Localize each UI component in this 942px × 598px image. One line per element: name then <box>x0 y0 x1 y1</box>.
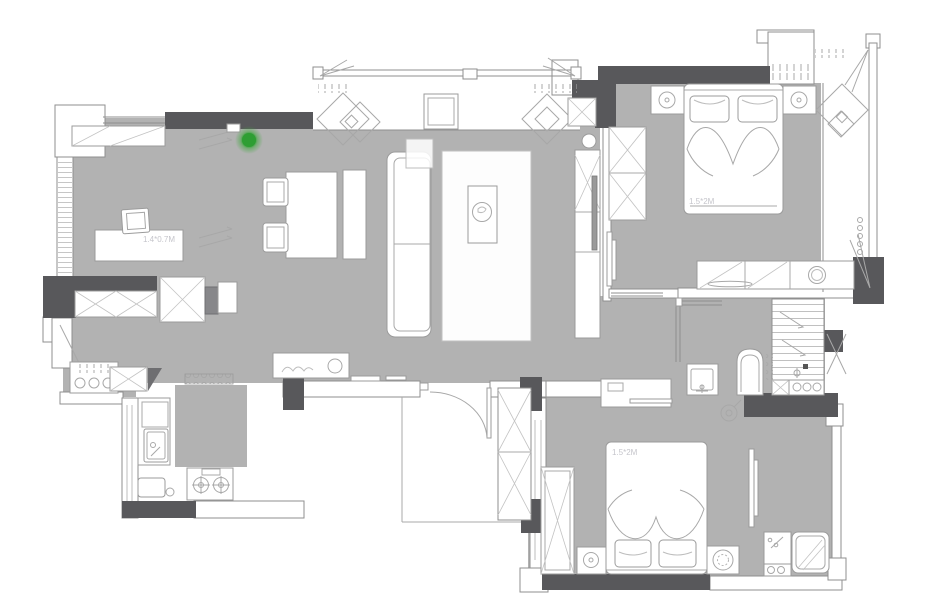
coffee-table <box>468 186 497 243</box>
laundry-bathroom <box>764 532 829 576</box>
desk-size-label: 1.4*0.7M <box>143 235 175 244</box>
tv-screen <box>592 176 597 250</box>
master-wardrobe <box>609 127 646 220</box>
nightstand-left <box>651 86 684 114</box>
entry-hall-floor <box>400 383 500 524</box>
floor-lamp <box>582 134 596 148</box>
cabinet-dark-box <box>205 287 218 314</box>
second-bed: 1.5*2M <box>606 442 707 574</box>
sill-hatch <box>815 49 848 58</box>
pillow <box>615 540 651 567</box>
entry-door-leaf[interactable] <box>487 388 491 438</box>
entry-closet <box>498 388 531 520</box>
window-hatch <box>770 62 812 80</box>
shelf-item <box>351 376 380 381</box>
sofa <box>387 152 431 337</box>
nightstand-right <box>783 86 816 114</box>
sliding-door-master[interactable] <box>607 232 612 286</box>
tv-cabinet <box>575 150 600 338</box>
dining-table <box>286 172 337 258</box>
laundry-east-wall <box>832 418 841 564</box>
laundry-sink <box>764 532 791 564</box>
living-rug <box>442 151 531 341</box>
shelf-item-2 <box>386 376 406 380</box>
kitchen-sink <box>144 429 168 462</box>
master-bed-size-label: 1.5*2M <box>689 197 715 206</box>
second-bed-size-label: 1.5*2M <box>612 448 638 457</box>
kitchen-south-wall <box>194 501 304 518</box>
door-hinge <box>676 298 682 306</box>
toilet <box>737 349 763 395</box>
shower <box>772 299 824 380</box>
kitchen-low-cabinet <box>138 478 165 497</box>
sill-hatch-right <box>533 84 577 93</box>
dresser <box>697 261 854 289</box>
east-balcony-frame <box>869 43 877 292</box>
pillow <box>738 96 777 122</box>
wardrobe <box>541 467 574 574</box>
kitchen-radiator <box>185 374 233 384</box>
sliding-door[interactable] <box>749 449 754 527</box>
master-bed: 1.5*2M <box>684 84 783 214</box>
south-wall-band <box>710 576 842 590</box>
desk <box>601 379 672 407</box>
storage-cabinet <box>75 291 157 317</box>
dining-bench <box>343 170 366 259</box>
shower-drain <box>803 364 808 369</box>
sill-hatch-left <box>318 84 348 93</box>
radiator-strip <box>766 350 773 380</box>
nightstand-left <box>577 547 606 574</box>
balcony-table <box>424 94 458 129</box>
wash-basin <box>792 532 829 573</box>
side-table <box>406 139 433 168</box>
pillow <box>659 540 696 567</box>
console-cabinet <box>273 353 349 378</box>
bath-sink-strip <box>789 380 824 395</box>
kitchen-island <box>175 385 247 467</box>
west-window-blind <box>58 158 72 281</box>
door-jamb <box>420 383 428 390</box>
bedroom2-north-band <box>546 381 603 397</box>
corner-block-2 <box>828 558 846 580</box>
floor-plan: 1.4*0.7M <box>0 0 942 598</box>
bathroom-vanity <box>687 364 718 395</box>
gas-stove <box>187 468 233 500</box>
cabinet-box <box>218 282 237 313</box>
sensor-icon <box>227 124 240 132</box>
kitchen-west-window <box>122 398 138 518</box>
wall-band <box>60 392 123 404</box>
nightstand-right <box>707 546 739 574</box>
pillow <box>690 96 729 122</box>
